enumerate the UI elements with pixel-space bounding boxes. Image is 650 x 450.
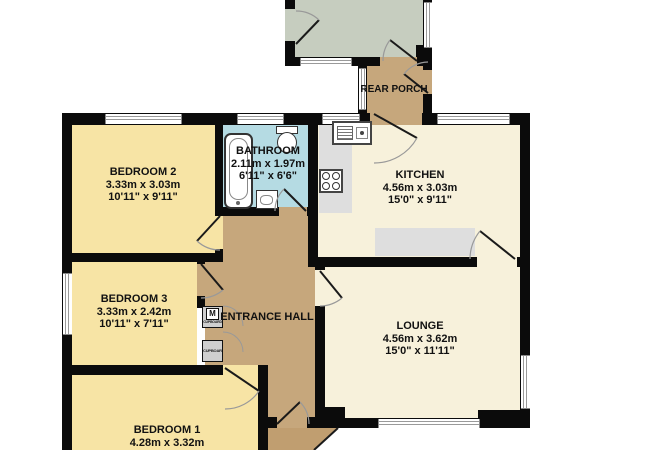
wall-front-stub-right: [307, 417, 345, 428]
label-rear-porch: REAR PORCH: [360, 84, 427, 97]
room-metric: 4.28m x 3.32m: [130, 437, 205, 450]
opening-kitchen-lounge: [477, 257, 517, 267]
room-name: ENTRANCE HALL: [220, 311, 314, 324]
room-imperial: 15'0" x 9'11": [383, 194, 458, 207]
wall-lounge-corner-se: [478, 410, 530, 428]
room-name: LOUNGE: [383, 320, 458, 333]
boiler-icon: M: [206, 308, 219, 320]
opening-front-door: [277, 417, 307, 428]
label-bedroom3: BEDROOM 3 3.33m x 2.42m 10'11" x 7'11": [97, 293, 172, 331]
cupboard-label: CUPBOARD: [203, 320, 222, 324]
basin-inner: [260, 195, 273, 205]
floor-front-porch: [267, 428, 338, 450]
opening-porch-kitchen: [370, 113, 422, 125]
wall-bed1-right: [258, 365, 268, 450]
room-name: REAR PORCH: [360, 84, 427, 97]
room-imperial: 10'11" x 7'11": [97, 318, 172, 331]
window-lounge-right: [521, 355, 530, 409]
room-metric: 2.11m x 1.97m: [231, 158, 305, 171]
room-imperial: 15'0" x 11'11": [383, 345, 458, 358]
room-metric: 3.33m x 3.03m: [106, 179, 181, 192]
window-bathroom-top: [237, 114, 284, 124]
label-entrance-hall: ENTRANCE HALL: [220, 311, 314, 324]
sink-basin: [356, 127, 368, 139]
room-imperial: 10'11" x 9'11": [106, 191, 181, 204]
room-metric: 4.56m x 3.03m: [383, 182, 458, 195]
sink-drainer: [337, 126, 353, 140]
wall-outbuilding-corner-se: [416, 45, 432, 66]
floorplan: M CUPBOARD CUPBOARD: [0, 0, 650, 450]
opening-outbuilding-porch: [380, 57, 417, 66]
opening-bedroom3: [197, 264, 205, 296]
floor-outbuilding: [295, 0, 423, 58]
window-bedroom3-left: [63, 273, 72, 335]
opening-bedroom2: [215, 216, 223, 249]
label-bathroom: BATHROOM 2.11m x 1.97m 6'11" x 6'6": [231, 145, 305, 183]
wall-bed3-bed1: [62, 365, 223, 375]
room-metric: 3.33m x 2.42m: [97, 306, 172, 319]
room-imperial: 6'11" x 6'6": [231, 170, 305, 183]
bathroom-basin: [256, 190, 278, 209]
floor-hall-mid: [205, 262, 315, 305]
wall-front-stub-left: [267, 417, 277, 428]
hob-burner-icon: [322, 172, 330, 180]
room-name: BEDROOM 2: [106, 166, 181, 179]
room-name: BEDROOM 1: [130, 424, 205, 437]
window-outbuilding-right: [424, 2, 432, 48]
opening-bedroom1: [223, 365, 258, 375]
label-bedroom2: BEDROOM 2 3.33m x 3.03m 10'11" x 9'11": [106, 166, 181, 204]
sink-tap-icon: [360, 131, 364, 135]
room-metric: 4.56m x 3.62m: [383, 333, 458, 346]
hob-burner-icon: [332, 172, 340, 180]
room-name: BEDROOM 3: [97, 293, 172, 306]
wall-bed2-bed3: [62, 253, 223, 262]
window-outbuilding-bottom: [300, 58, 352, 66]
room-name: KITCHEN: [383, 169, 458, 182]
kitchen-counter-bottom: [375, 228, 475, 256]
label-bedroom1: BEDROOM 1 4.28m x 3.32m: [130, 424, 205, 449]
bathtub-tap-icon: [236, 201, 240, 205]
kitchen-hob: [319, 169, 343, 193]
label-kitchen: KITCHEN 4.56m x 3.03m 15'0" x 9'11": [383, 169, 458, 207]
wall-kitchen-left: [308, 113, 318, 267]
window-kitchen-top-right: [437, 114, 510, 124]
opening-outbuilding-left: [285, 9, 295, 41]
opening-bathroom: [279, 207, 307, 216]
hob-burner-icon: [332, 182, 340, 190]
cupboard-label: CUPBOARD: [203, 341, 222, 361]
room-name: BATHROOM: [231, 145, 305, 158]
label-lounge: LOUNGE 4.56m x 3.62m 15'0" x 11'11": [383, 320, 458, 358]
window-lounge-bottom: [378, 419, 480, 428]
opening-lounge: [315, 270, 325, 306]
floor-hall-upper: [223, 216, 308, 262]
floor-hall-south: [267, 365, 315, 418]
kitchen-sink: [332, 121, 372, 145]
hob-burner-icon: [322, 182, 330, 190]
cupboard-storage: CUPBOARD: [202, 340, 223, 362]
window-bedroom2-top: [105, 114, 182, 124]
